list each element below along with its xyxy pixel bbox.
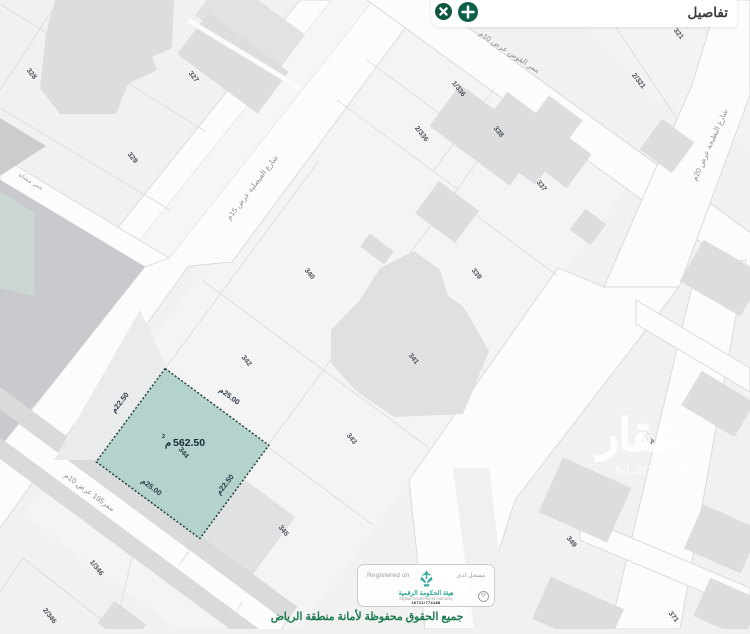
svg-text:sa.aqar.fm: sa.aqar.fm: [615, 458, 689, 478]
svg-text:م: م: [165, 438, 171, 449]
svg-text:2: 2: [162, 434, 165, 440]
svg-text:عقار: عقار: [594, 411, 680, 462]
svg-text:562.50: 562.50: [173, 437, 205, 449]
